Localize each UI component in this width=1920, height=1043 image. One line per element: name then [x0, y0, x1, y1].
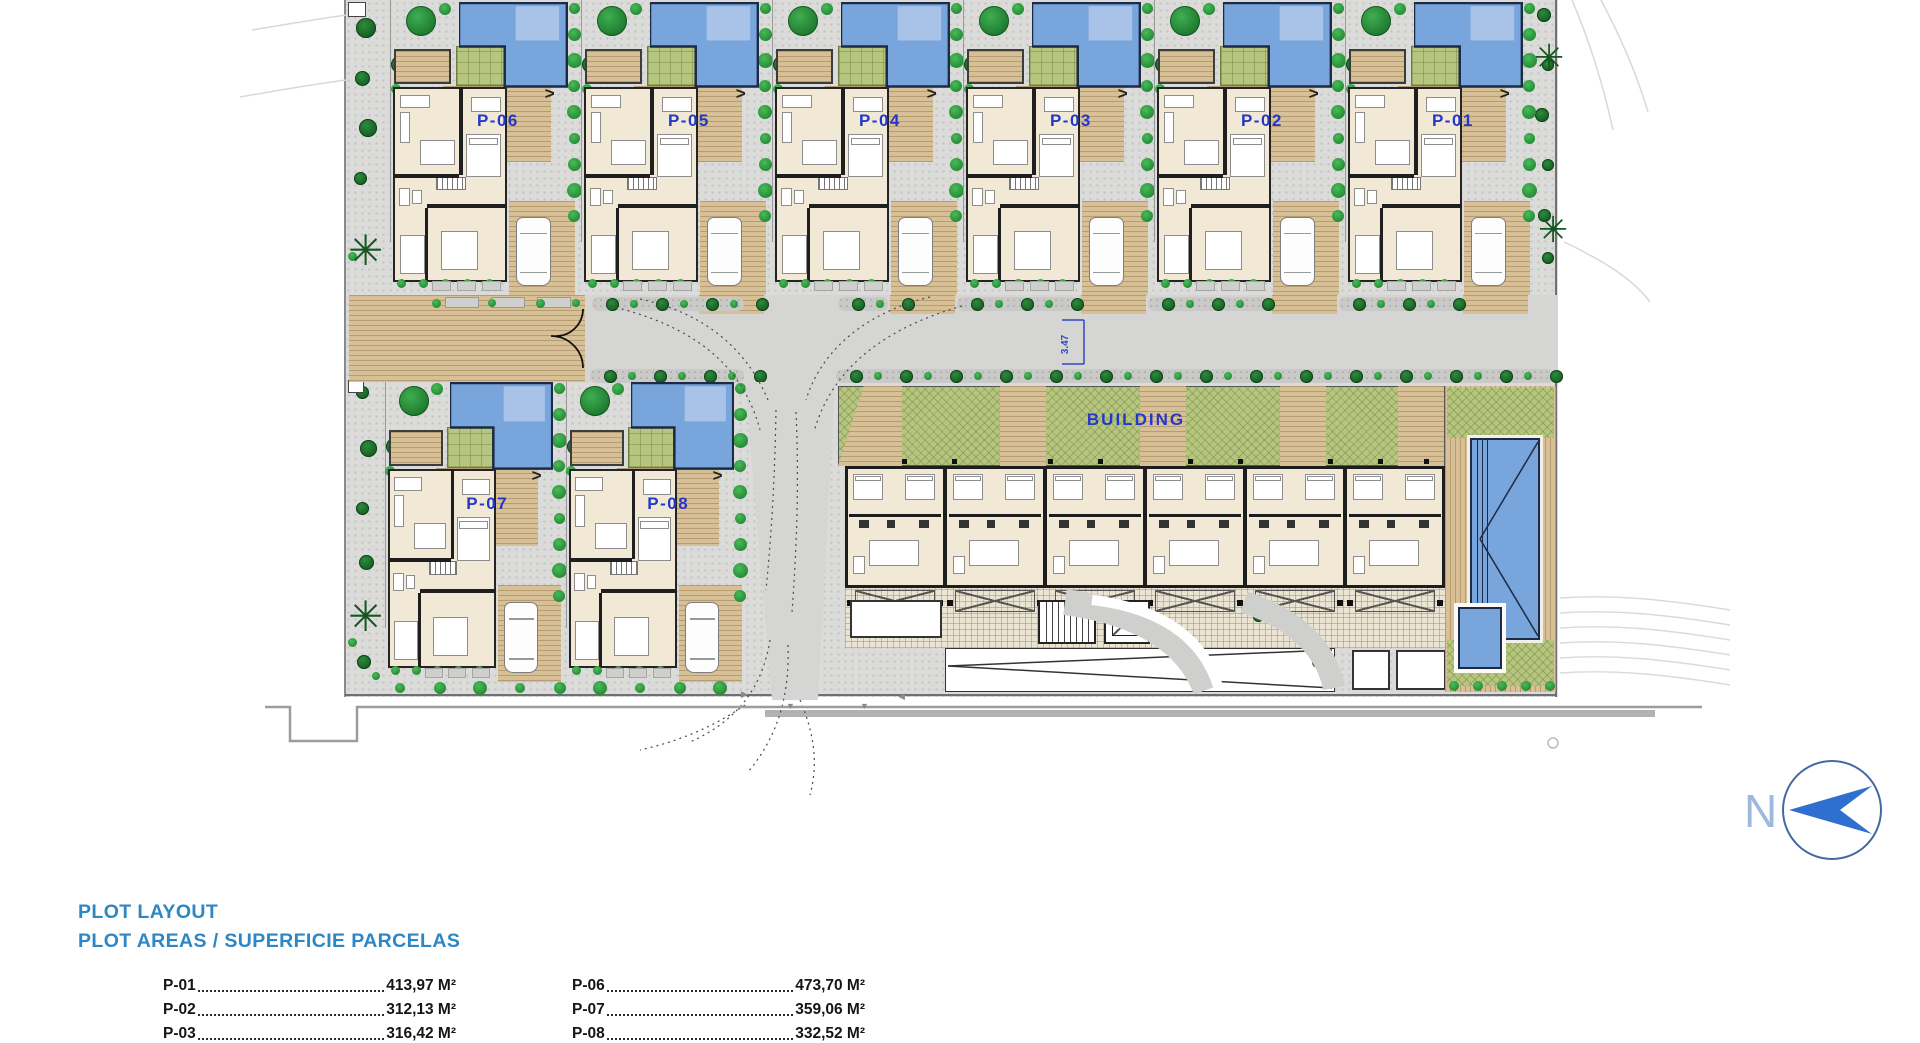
planter: [1055, 281, 1074, 291]
furniture: [618, 204, 698, 208]
swimming-pool: [1223, 2, 1332, 88]
pergola-deck: [1349, 49, 1406, 84]
plot-label-text: P-03: [1050, 111, 1092, 131]
plot-area-value: 359,06 M²: [795, 1001, 865, 1019]
dotted-leader: [607, 990, 793, 992]
car: [516, 217, 551, 286]
car-rear-window: [711, 272, 738, 274]
car-rear-window: [902, 272, 929, 274]
post: [1048, 459, 1053, 464]
pillow: [1107, 476, 1133, 481]
swimming-pool: [459, 2, 568, 88]
planter: [648, 281, 667, 291]
dotted-leader: [198, 990, 384, 992]
furniture: [584, 174, 650, 178]
plot-area-value: 312,13 M²: [386, 1001, 456, 1019]
furniture: [575, 621, 599, 661]
shrub-icon: [552, 485, 566, 499]
tree-icon: [979, 6, 1009, 36]
deck-arrow-icon: >: [1118, 84, 1134, 102]
cabinet: [1253, 556, 1265, 574]
shrub-icon: [734, 460, 746, 472]
road-landscaping: [836, 369, 1554, 383]
planter: [425, 668, 443, 679]
tree-icon: [1361, 6, 1391, 36]
shrub-icon: [734, 538, 747, 551]
tree-icon: [360, 440, 377, 457]
furniture: [601, 589, 677, 593]
furniture: [614, 617, 649, 657]
shrub-icon: [760, 3, 771, 14]
shrub-icon: [432, 299, 441, 308]
shrub-icon: [1474, 372, 1482, 380]
stair-tread: [1088, 602, 1089, 642]
tree-icon: [706, 298, 719, 311]
inner-wall: [849, 514, 941, 517]
plot-area-label: P-01: [163, 977, 196, 995]
fixture: [987, 520, 995, 528]
sofa-bed: [1169, 540, 1219, 566]
shrub-icon: [713, 681, 727, 695]
plot-boundary: [1345, 0, 1346, 242]
shrub-icon: [1374, 372, 1382, 380]
plot-area-row: P-06473,70 M²: [572, 971, 865, 995]
furniture: [388, 558, 451, 562]
swimming-pool: [1032, 2, 1141, 88]
shrub-icon: [568, 158, 581, 171]
furniture: [591, 95, 621, 109]
plot-label: P-04: [829, 89, 930, 154]
court-planter: [445, 297, 479, 308]
furniture: [399, 188, 410, 206]
car-rear-window: [520, 272, 547, 274]
shrub-icon: [951, 133, 962, 144]
furniture: [400, 95, 430, 109]
furniture: [599, 593, 602, 669]
shrub-icon: [1186, 300, 1194, 308]
driveway-apron: [1463, 295, 1528, 314]
furniture: [1355, 235, 1380, 274]
swimming-pool: [841, 2, 950, 88]
furniture: [394, 477, 422, 491]
furniture: [794, 190, 803, 204]
site-bottom-boundary: [345, 694, 1556, 696]
tree-icon: [1403, 298, 1416, 311]
inner-wall: [1249, 514, 1341, 517]
furniture: [433, 617, 468, 657]
plot-label: P-08: [620, 471, 716, 537]
site-left-boundary: [344, 0, 346, 697]
pillow: [1007, 476, 1033, 481]
plot-label: P-02: [1211, 89, 1312, 154]
furniture: [427, 204, 507, 208]
fixture: [1087, 520, 1095, 528]
tree-icon: [1050, 370, 1063, 383]
stair-tread: [1052, 602, 1053, 642]
car-windshield: [902, 233, 929, 235]
post: [1424, 459, 1429, 464]
fixture: [1287, 520, 1295, 528]
shrub-icon: [924, 372, 932, 380]
shrub-icon: [1124, 372, 1132, 380]
shrub-icon: [759, 210, 771, 222]
tree-icon: [1450, 370, 1463, 383]
shrub-icon: [1140, 183, 1155, 198]
tree-icon: [656, 298, 669, 311]
shrub-icon: [554, 383, 565, 394]
car: [685, 602, 718, 673]
shrub-icon: [1142, 133, 1153, 144]
shrub-icon: [628, 372, 636, 380]
shrub-icon: [569, 133, 580, 144]
swimming-pool: [450, 382, 553, 470]
shrub-icon: [568, 28, 581, 41]
plot-boundary: [963, 0, 964, 242]
shrub-icon: [1332, 210, 1344, 222]
planter: [1030, 281, 1049, 291]
car-rear-window: [690, 658, 715, 660]
pillow: [1207, 476, 1233, 481]
shrub-icon: [1224, 372, 1232, 380]
shrub-icon: [759, 80, 771, 92]
furniture: [781, 188, 792, 206]
car-windshield: [1093, 233, 1120, 235]
furniture: [569, 558, 632, 562]
shrub-icon: [553, 408, 566, 421]
shrub-icon: [1523, 80, 1535, 92]
furniture: [393, 174, 459, 178]
plot-areas-column-1: P-01413,97 M²P-02312,13 M²P-03316,42 M²: [163, 971, 456, 1043]
tree-icon: [852, 298, 865, 311]
shrub-icon: [593, 681, 607, 695]
tree-icon: [1542, 159, 1554, 171]
tree-icon: [1250, 370, 1263, 383]
tree-icon: [1537, 8, 1551, 22]
plot-label: P-03: [1020, 89, 1121, 154]
planter: [1221, 281, 1240, 291]
furniture: [603, 190, 612, 204]
party-wall: [1143, 466, 1147, 588]
tree-icon: [606, 298, 619, 311]
fixture: [1219, 520, 1229, 528]
plot-area-value: 332,52 M²: [795, 1025, 865, 1043]
swimming-pool: [1414, 2, 1523, 88]
inner-wall: [949, 514, 1041, 517]
north-arrow-circle: [1782, 760, 1882, 860]
plot-boundary: [1154, 0, 1155, 242]
plot-boundary: [772, 0, 773, 242]
shrub-icon: [488, 299, 496, 307]
tree-icon: [1350, 370, 1363, 383]
plot-area-label: P-02: [163, 1001, 196, 1019]
swimming-pool: [650, 2, 759, 88]
lawn: [1447, 388, 1554, 438]
furniture: [966, 174, 1032, 178]
furniture: [818, 177, 848, 191]
tree-icon: [354, 172, 367, 185]
tree-icon: [359, 119, 377, 137]
plot-area-value: 413,97 M²: [386, 977, 456, 995]
furniture: [1367, 190, 1376, 204]
planter: [1196, 281, 1215, 291]
furniture: [1348, 174, 1414, 178]
shrub-icon: [569, 3, 580, 14]
furniture: [1163, 188, 1174, 206]
pillow: [1255, 476, 1281, 481]
north-letter: N: [1744, 784, 1777, 838]
car: [898, 217, 933, 286]
furniture: [1164, 95, 1194, 109]
pergola-deck: [967, 49, 1024, 84]
pergola-deck: [585, 49, 642, 84]
furniture: [406, 575, 415, 589]
plot-area-label: P-07: [572, 1001, 605, 1019]
shrub-icon: [1332, 80, 1344, 92]
shrub-icon: [552, 563, 567, 578]
palm-tree-icon: ✳: [1538, 212, 1574, 248]
parking-bay: [850, 600, 942, 638]
shrub-icon: [950, 80, 962, 92]
legend-subtitle: PLOT AREAS / SUPERFICIE PARCELAS: [78, 930, 460, 953]
shrub-icon: [876, 300, 884, 308]
street-arrow-down-icon: ▼: [786, 702, 798, 714]
plot-label-text: P-07: [466, 494, 508, 514]
fixture: [859, 520, 869, 528]
furniture: [394, 495, 404, 527]
shrub-icon: [733, 563, 748, 578]
palm-tree-icon: ✳: [348, 596, 390, 638]
party-wall: [1243, 466, 1247, 588]
shrub-icon: [434, 682, 446, 694]
tree-icon: [406, 6, 436, 36]
stair-tread: [1070, 602, 1071, 642]
planter: [1387, 281, 1406, 291]
planter: [814, 281, 833, 291]
shrub-icon: [950, 28, 963, 41]
shrub-icon: [1377, 300, 1385, 308]
plot-label-text: P-04: [859, 111, 901, 131]
furniture: [775, 174, 841, 178]
furniture: [973, 235, 998, 274]
furniture: [610, 561, 638, 575]
shrub-icon: [635, 683, 645, 693]
plot-label: P-01: [1402, 89, 1503, 154]
tree-icon: [1164, 634, 1176, 646]
pillow: [1407, 476, 1433, 481]
furniture: [632, 231, 669, 270]
shrub-icon: [395, 683, 405, 693]
shrub-icon: [728, 372, 736, 380]
plot-area-row: P-01413,97 M²: [163, 971, 456, 995]
planter: [864, 281, 883, 291]
shrub-icon: [758, 105, 772, 119]
sofa-bed: [969, 540, 1019, 566]
tree-icon: [1400, 370, 1413, 383]
planter: [448, 668, 466, 679]
furniture: [972, 188, 983, 206]
furniture: [393, 573, 404, 591]
shrub-icon: [995, 300, 1003, 308]
shrub-icon: [950, 210, 962, 222]
tree-icon: [654, 370, 667, 383]
shrub-icon: [949, 183, 964, 198]
shrub-icon: [949, 105, 963, 119]
car-windshield: [520, 233, 547, 235]
furniture: [400, 112, 410, 143]
deck-arrow-icon: >: [532, 466, 548, 484]
cabinet: [1353, 556, 1365, 574]
balcony-brace: [1155, 590, 1235, 612]
furniture: [412, 190, 421, 204]
planter: [432, 281, 451, 291]
shrub-icon: [630, 300, 638, 308]
deck-arrow-icon: >: [927, 84, 943, 102]
tree-icon: [357, 655, 371, 669]
furniture: [782, 112, 792, 143]
driveway-apron: [1081, 295, 1146, 314]
car-windshield: [1475, 233, 1502, 235]
post: [1378, 459, 1383, 464]
legend-title: PLOT LAYOUT: [78, 901, 218, 924]
tree-icon: [1071, 298, 1084, 311]
furniture: [1355, 112, 1365, 143]
fixture: [1159, 520, 1169, 528]
tree-icon: [580, 386, 610, 416]
furniture: [1355, 95, 1385, 109]
shrub-icon: [1497, 681, 1507, 691]
car: [504, 602, 537, 673]
planter: [839, 281, 858, 291]
post: [1238, 459, 1243, 464]
palm-tree-icon: ✳: [1534, 40, 1570, 76]
tree-icon: [1200, 370, 1213, 383]
cabinet: [1053, 556, 1065, 574]
plot-label: P-06: [447, 89, 548, 154]
stair-tread: [1058, 602, 1059, 642]
shrub-icon: [1524, 133, 1535, 144]
furniture: [782, 235, 807, 274]
post: [1337, 600, 1343, 606]
shrub-icon: [554, 682, 566, 694]
shrub-icon: [1524, 372, 1532, 380]
furniture: [1014, 231, 1051, 270]
stair-tread: [1064, 602, 1065, 642]
planter: [653, 668, 671, 679]
pergola-deck: [776, 49, 833, 84]
party-wall: [943, 466, 947, 588]
planter: [1005, 281, 1024, 291]
elevator-shaft: [1112, 608, 1142, 636]
tree-icon: [1353, 298, 1366, 311]
furniture: [809, 204, 889, 208]
pillow: [1355, 476, 1381, 481]
tree-icon: [604, 370, 617, 383]
planter: [606, 668, 624, 679]
shrub-icon: [1331, 105, 1345, 119]
shrub-icon: [552, 433, 567, 448]
shrub-icon: [372, 672, 380, 680]
tree-icon: [1150, 370, 1163, 383]
shrub-icon: [553, 590, 565, 602]
pergola-deck: [570, 430, 624, 466]
tree-icon: [950, 370, 963, 383]
shrub-icon: [553, 538, 566, 551]
shrub-icon: [1140, 53, 1155, 68]
plot-area-label: P-06: [572, 977, 605, 995]
tree-icon: [1300, 370, 1313, 383]
fixture: [1059, 520, 1069, 528]
shrub-icon: [536, 299, 545, 308]
post: [947, 600, 953, 606]
shrub-icon: [951, 3, 962, 14]
shrub-icon: [974, 372, 982, 380]
shrub-icon: [1141, 210, 1153, 222]
plot-label-text: P-08: [647, 494, 689, 514]
furniture: [1164, 112, 1174, 143]
shrub-icon: [735, 383, 746, 394]
furniture: [1354, 188, 1365, 206]
balcony-brace: [1255, 590, 1335, 612]
small-pool: [1458, 607, 1502, 669]
furniture: [1191, 204, 1271, 208]
deck-arrow-icon: >: [736, 84, 752, 102]
tree-icon: [1162, 298, 1175, 311]
driveway-apron: [890, 295, 955, 314]
shrub-icon: [1141, 80, 1153, 92]
plot-area-value: 473,70 M²: [795, 977, 865, 995]
furniture: [575, 495, 585, 527]
shrub-icon: [567, 53, 582, 68]
furniture: [1380, 208, 1383, 282]
plot-label-text: P-05: [668, 111, 710, 131]
shrub-icon: [1324, 372, 1332, 380]
shrub-icon: [758, 53, 773, 68]
shrub-icon: [734, 408, 747, 421]
shrub-icon: [568, 80, 580, 92]
tree-icon: [1021, 298, 1034, 311]
furniture: [1176, 190, 1185, 204]
pillow: [1307, 476, 1333, 481]
shrub-icon: [949, 53, 964, 68]
planter: [472, 668, 490, 679]
post: [1237, 600, 1243, 606]
car-rear-window: [509, 658, 534, 660]
plot-area-row: P-08332,52 M²: [572, 1019, 865, 1043]
shrub-icon: [1545, 681, 1555, 691]
fixture: [959, 520, 969, 528]
shrub-icon: [1140, 105, 1154, 119]
furniture: [627, 177, 657, 191]
tree-icon: [1253, 611, 1264, 622]
court-planter: [491, 297, 525, 308]
shrub-icon: [554, 513, 565, 524]
shrub-icon: [1523, 158, 1536, 171]
furniture: [1391, 177, 1421, 191]
furniture: [1157, 174, 1223, 178]
deck-arrow-icon: >: [713, 466, 729, 484]
planter: [1412, 281, 1431, 291]
furniture: [973, 112, 983, 143]
tree-icon: [971, 298, 984, 311]
shrub-icon: [568, 210, 580, 222]
furniture: [782, 95, 812, 109]
shrub-icon: [734, 590, 746, 602]
tree-icon: [1191, 659, 1201, 669]
driveway-apron: [1272, 295, 1337, 314]
fixture: [1319, 520, 1329, 528]
tree-icon: [359, 555, 374, 570]
post: [1328, 459, 1333, 464]
